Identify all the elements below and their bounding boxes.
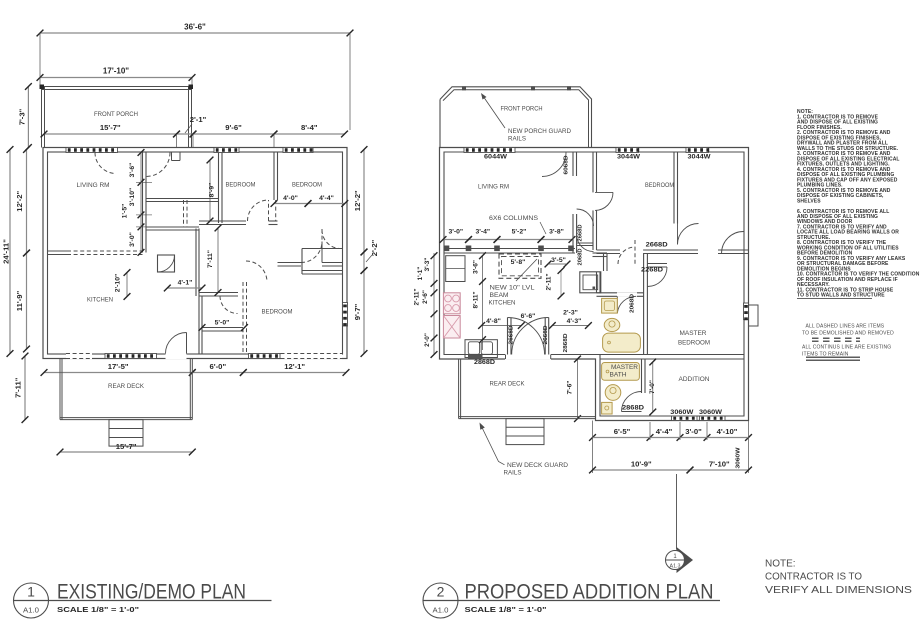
svg-text:3'-6": 3'-6": [473, 260, 480, 274]
svg-text:24'-11": 24'-11": [2, 239, 11, 264]
svg-text:KITCHEN: KITCHEN: [87, 297, 113, 304]
svg-text:3'-8": 3'-8": [549, 229, 564, 236]
svg-text:TO BE DEMOLISHED AND REMOVED: TO BE DEMOLISHED AND REMOVED: [802, 331, 894, 337]
svg-text:4'-4": 4'-4": [656, 427, 673, 436]
svg-text:17'-10": 17'-10": [103, 67, 129, 76]
svg-text:3'-0": 3'-0": [685, 427, 702, 436]
svg-text:11'-9": 11'-9": [15, 290, 24, 311]
svg-text:2868D: 2868D: [563, 334, 569, 353]
svg-text:NEW DECK GUARD: NEW DECK GUARD: [507, 462, 569, 469]
svg-text:8'-4": 8'-4": [301, 123, 318, 132]
svg-text:2868D: 2868D: [622, 406, 645, 412]
svg-text:2068D: 2068D: [578, 248, 584, 265]
svg-text:9'-7": 9'-7": [353, 303, 362, 320]
svg-text:10'-9": 10'-9": [631, 459, 652, 468]
svg-text:12'-2": 12'-2": [15, 190, 24, 211]
svg-text:2'-6": 2'-6": [422, 290, 429, 304]
svg-text:3'-0": 3'-0": [448, 229, 463, 236]
svg-text:MASTER: MASTER: [611, 364, 639, 371]
svg-text:15'-7": 15'-7": [116, 442, 137, 451]
svg-text:3060W: 3060W: [736, 447, 742, 469]
svg-text:6X6 COLUMNS: 6X6 COLUMNS: [489, 215, 538, 222]
svg-text:ALL CONTINUS LINE ARE EXISTING: ALL CONTINUS LINE ARE EXISTING: [802, 345, 891, 351]
svg-text:4'-10": 4'-10": [717, 427, 738, 436]
svg-text:2668D: 2668D: [543, 326, 549, 345]
svg-text:REAR DECK: REAR DECK: [490, 381, 526, 388]
svg-text:A1.0: A1.0: [23, 606, 39, 615]
svg-text:1'-5": 1'-5": [122, 204, 129, 219]
svg-text:2'-11": 2'-11": [414, 289, 421, 306]
svg-text:SCALE 1/8" = 1'-0": SCALE 1/8" = 1'-0": [57, 605, 140, 614]
svg-text:A1.3: A1.3: [670, 564, 681, 570]
svg-text:SHELVES: SHELVES: [797, 198, 821, 204]
svg-text:4'-3": 4'-3": [567, 318, 582, 325]
svg-text:15'-7": 15'-7": [100, 123, 121, 132]
svg-text:2'-2": 2'-2": [370, 239, 379, 256]
svg-text:NEW PORCH GUARD: NEW PORCH GUARD: [508, 128, 572, 135]
svg-text:2668D: 2668D: [646, 242, 669, 248]
svg-text:ADDITION: ADDITION: [679, 376, 710, 383]
svg-text:7'-10": 7'-10": [709, 459, 730, 468]
svg-text:4'-0": 4'-0": [283, 195, 298, 202]
svg-text:VERIFY ALL DIMENSIONS: VERIFY ALL DIMENSIONS: [765, 585, 912, 596]
svg-text:A1.0: A1.0: [433, 606, 449, 615]
svg-text:LIVING RM: LIVING RM: [478, 184, 509, 191]
svg-text:3060W: 3060W: [670, 409, 693, 416]
svg-text:BEDROOM: BEDROOM: [678, 340, 710, 347]
svg-text:FRONT PORCH: FRONT PORCH: [94, 111, 138, 118]
svg-text:12'-1": 12'-1": [284, 362, 305, 371]
svg-text:2: 2: [437, 584, 445, 600]
svg-text:PROPOSED ADDITION PLAN: PROPOSED ADDITION PLAN: [465, 581, 714, 604]
svg-text:2'-3": 2'-3": [563, 310, 578, 317]
svg-text:TO STUD WALLS AND STRUCTURE: TO STUD WALLS AND STRUCTURE: [797, 293, 885, 299]
svg-text:7'-3": 7'-3": [18, 108, 27, 125]
svg-text:9'-6": 9'-6": [225, 123, 242, 132]
svg-text:5'-0": 5'-0": [215, 320, 230, 327]
svg-text:FRONT PORCH: FRONT PORCH: [501, 106, 543, 113]
svg-text:2'-1": 2'-1": [190, 115, 207, 124]
svg-text:5'-2": 5'-2": [512, 229, 527, 236]
svg-text:BEDROOM: BEDROOM: [262, 309, 293, 316]
svg-text:3044W: 3044W: [688, 154, 711, 161]
svg-text:BEDROOM: BEDROOM: [645, 182, 674, 189]
svg-text:6044W: 6044W: [484, 154, 507, 161]
svg-text:RAILS: RAILS: [508, 136, 526, 143]
svg-text:6'-0": 6'-0": [210, 362, 227, 371]
svg-text:2'-11": 2'-11": [546, 274, 553, 291]
svg-text:4'-8": 4'-8": [486, 318, 501, 325]
svg-text:2668D: 2668D: [509, 326, 515, 345]
svg-text:BEDROOM: BEDROOM: [292, 182, 322, 189]
svg-text:3'-5": 3'-5": [551, 257, 566, 264]
svg-text:3'-3": 3'-3": [424, 258, 431, 272]
svg-text:3060W: 3060W: [699, 409, 722, 416]
svg-text:2068D: 2068D: [630, 294, 636, 313]
svg-text:36'-6": 36'-6": [184, 23, 206, 32]
svg-text:6'-5": 6'-5": [614, 427, 631, 436]
svg-text:MASTER: MASTER: [680, 330, 708, 337]
svg-text:RAILS: RAILS: [504, 470, 522, 477]
svg-text:KITCHEN: KITCHEN: [489, 300, 516, 307]
svg-text:NOTE:: NOTE:: [765, 559, 796, 570]
svg-text:ALL DASHED LINES ARE ITEMS: ALL DASHED LINES ARE ITEMS: [806, 323, 885, 329]
svg-text:6068D: 6068D: [564, 156, 570, 175]
svg-text:4'-4": 4'-4": [319, 195, 334, 202]
svg-text:12'-2": 12'-2": [353, 190, 362, 211]
svg-text:BEDROOM: BEDROOM: [226, 182, 256, 189]
svg-text:BATH: BATH: [610, 372, 627, 379]
svg-text:5'-8": 5'-8": [511, 259, 526, 266]
svg-text:LIVING RM: LIVING RM: [77, 182, 110, 189]
svg-text:6'-6": 6'-6": [521, 313, 536, 320]
svg-text:3'-0": 3'-0": [129, 232, 136, 247]
svg-text:3'-4": 3'-4": [475, 229, 490, 236]
svg-text:3'-6": 3'-6": [129, 163, 136, 178]
svg-text:ITEMS TO REMAIN: ITEMS TO REMAIN: [802, 351, 849, 357]
svg-text:7'-0": 7'-0": [649, 380, 656, 394]
svg-text:2868D: 2868D: [474, 360, 496, 366]
svg-text:REAR DECK: REAR DECK: [108, 383, 145, 390]
svg-text:2'-10": 2'-10": [115, 274, 122, 292]
svg-text:8'-11": 8'-11": [473, 292, 480, 309]
svg-text:7'-6": 7'-6": [567, 381, 574, 395]
svg-text:7'-11": 7'-11": [207, 250, 214, 268]
svg-text:SCALE 1/8" = 1'-0": SCALE 1/8" = 1'-0": [465, 605, 548, 614]
svg-text:7'-11": 7'-11": [14, 377, 23, 398]
svg-text:3'-10": 3'-10": [129, 188, 136, 206]
svg-text:4'-1": 4'-1": [178, 280, 193, 287]
svg-text:EXISTING/DEMO PLAN: EXISTING/DEMO PLAN: [57, 581, 246, 604]
svg-text:1'-1": 1'-1": [417, 267, 424, 281]
svg-text:1: 1: [27, 584, 35, 600]
svg-text:2668D: 2668D: [578, 224, 584, 241]
svg-text:17'-5": 17'-5": [108, 362, 129, 371]
svg-text:8'-9": 8'-9": [209, 183, 216, 198]
svg-text:NEW 10" LVL: NEW 10" LVL: [490, 285, 536, 292]
svg-text:2268D: 2268D: [641, 267, 664, 273]
svg-text:3044W: 3044W: [617, 154, 640, 161]
svg-text:CONTRACTOR IS TO: CONTRACTOR IS TO: [765, 572, 862, 583]
svg-text:2'-0": 2'-0": [424, 333, 431, 347]
svg-text:BEAM: BEAM: [490, 292, 509, 299]
